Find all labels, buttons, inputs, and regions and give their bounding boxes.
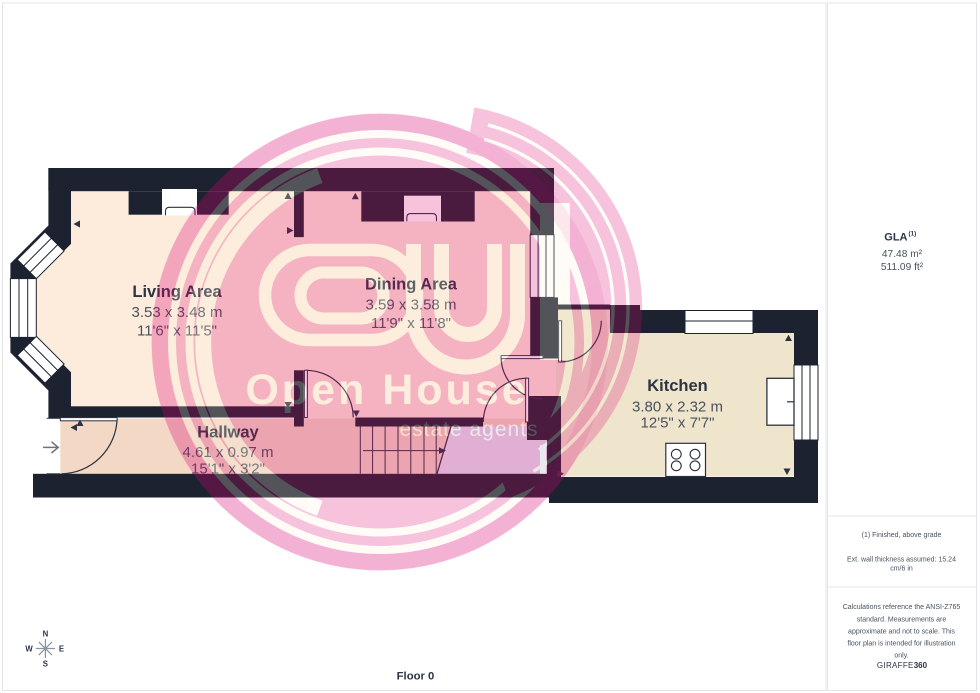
svg-text:W: W: [25, 644, 33, 653]
svg-text:GLA: GLA: [884, 232, 907, 244]
svg-text:GIRAFFE360: GIRAFFE360: [877, 661, 928, 670]
svg-text:S: S: [43, 660, 48, 669]
svg-text:approximate and not to scale.: approximate and not to scale. This: [848, 629, 955, 636]
svg-text:Ext. wall thickness assumed: 1: Ext. wall thickness assumed: 15.24: [847, 557, 956, 564]
svg-text:(1): (1): [909, 231, 917, 238]
svg-text:Floor 0: Floor 0: [397, 671, 435, 683]
svg-text:cm/6 in: cm/6 in: [890, 566, 913, 573]
svg-text:E: E: [59, 644, 64, 653]
svg-text:Kitchen: Kitchen: [647, 377, 708, 395]
svg-text:estate agents: estate agents: [399, 418, 538, 441]
svg-text:N: N: [43, 630, 49, 639]
svg-text:511.09 ft²: 511.09 ft²: [881, 262, 924, 273]
svg-text:Open House: Open House: [245, 366, 528, 414]
svg-text:floor plan is intended for ill: floor plan is intended for illustration: [847, 641, 955, 648]
svg-text:(1) Finished, above grade: (1) Finished, above grade: [862, 532, 942, 539]
svg-text:standard. Measurements are: standard. Measurements are: [857, 617, 947, 624]
svg-text:Calculations reference the ANS: Calculations reference the ANSI-Z765: [843, 604, 961, 611]
svg-text:3.80 x 2.32 m: 3.80 x 2.32 m: [632, 399, 723, 416]
svg-text:only.: only.: [894, 653, 908, 660]
svg-text:47.48 m²: 47.48 m²: [882, 249, 923, 260]
svg-text:12'5" x 7'7": 12'5" x 7'7": [641, 415, 715, 432]
